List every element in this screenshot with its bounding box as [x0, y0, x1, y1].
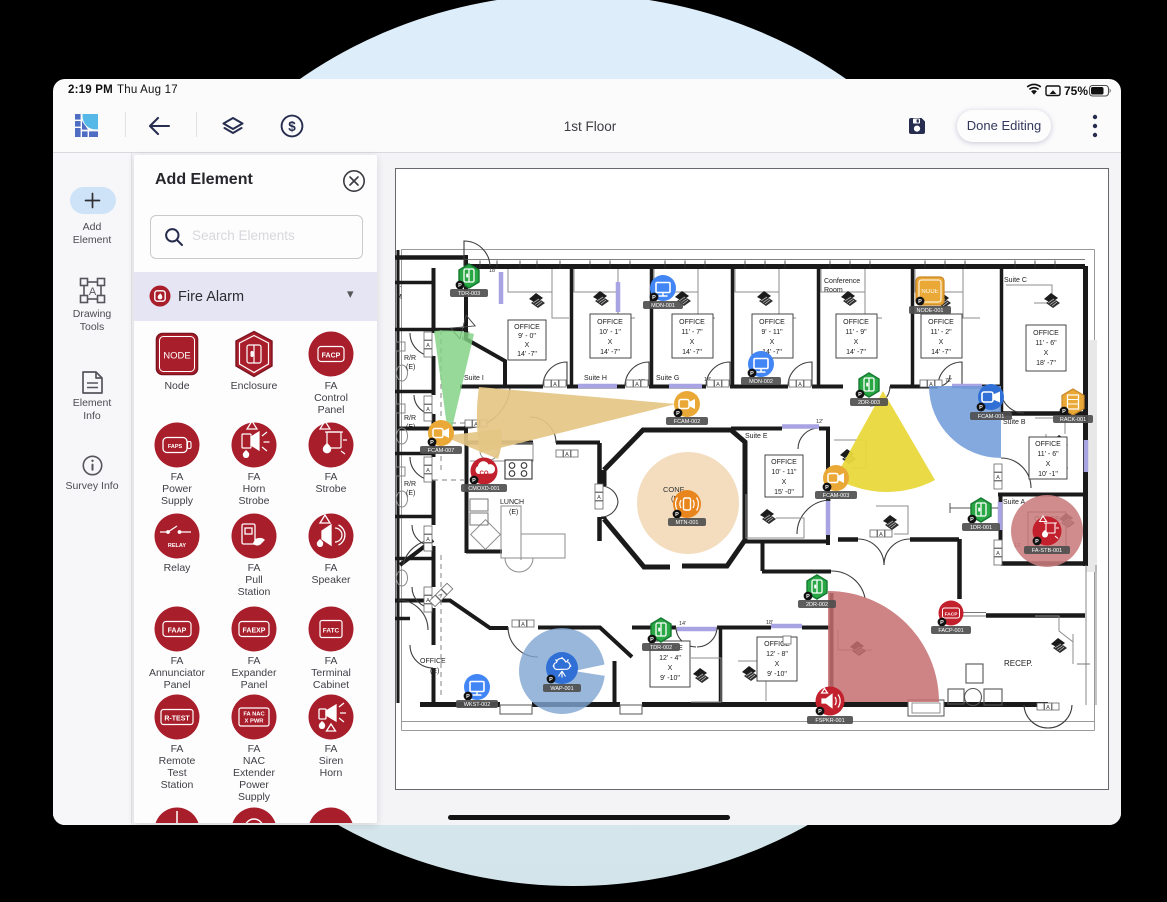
- svg-text:NODE: NODE: [921, 289, 938, 295]
- svg-text:NODE-001: NODE-001: [917, 308, 944, 314]
- svg-text:FANACExtenderPowerSupply: FANACExtenderPowerSupply: [233, 743, 276, 803]
- svg-text:T.: T.: [396, 282, 402, 289]
- svg-text:FA-STB-001: FA-STB-001: [1032, 548, 1062, 554]
- svg-text:FCAM-001: FCAM-001: [978, 414, 1005, 420]
- svg-text:MON-002: MON-002: [749, 379, 773, 385]
- svg-text:14': 14': [679, 621, 686, 627]
- svg-text:LUNCH: LUNCH: [500, 499, 524, 506]
- svg-text:WKST-002: WKST-002: [464, 702, 491, 708]
- svg-text:72': 72': [945, 378, 952, 384]
- svg-text:FCAM-002: FCAM-002: [674, 419, 701, 425]
- svg-text:FAControlPanel: FAControlPanel: [314, 380, 348, 416]
- svg-text:R-TEST: R-TEST: [164, 716, 190, 723]
- svg-text:MTN-001: MTN-001: [676, 520, 699, 526]
- svg-text:X PWR: X PWR: [244, 719, 264, 725]
- svg-text:FCAM-007: FCAM-007: [428, 448, 455, 454]
- svg-text:2DR-003: 2DR-003: [858, 400, 880, 406]
- svg-text:R/R: R/R: [404, 355, 416, 362]
- svg-text:TDR-003: TDR-003: [458, 291, 480, 297]
- svg-text:RECEP.: RECEP.: [1004, 659, 1033, 668]
- svg-text:2DR-002: 2DR-002: [806, 602, 828, 608]
- svg-text:FARemoteTestStation: FARemoteTestStation: [159, 743, 196, 791]
- svg-text:12': 12': [816, 419, 823, 425]
- svg-text:RACK-001: RACK-001: [1060, 417, 1086, 423]
- svg-text:OFFICE: OFFICE: [420, 658, 446, 665]
- svg-text:R/R: R/R: [404, 415, 416, 422]
- svg-text:TDR-002: TDR-002: [650, 645, 672, 651]
- svg-text:Suite I: Suite I: [464, 375, 484, 382]
- svg-text:NODE: NODE: [163, 351, 190, 362]
- svg-text:R/R: R/R: [404, 481, 416, 488]
- svg-text:(E): (E): [406, 490, 415, 497]
- svg-text:Relay: Relay: [164, 562, 192, 574]
- svg-text:(E): (E): [406, 364, 415, 371]
- svg-text:CMOXD-001: CMOXD-001: [468, 486, 499, 492]
- svg-text:FACP-001: FACP-001: [938, 628, 963, 634]
- svg-text:$: $: [288, 119, 296, 134]
- svg-text:FAPS: FAPS: [168, 444, 183, 450]
- svg-text:M: M: [396, 294, 402, 301]
- svg-text:MON-001: MON-001: [651, 303, 675, 309]
- svg-text:Suite B: Suite B: [1003, 419, 1026, 426]
- svg-text:75%: 75%: [1064, 84, 1088, 98]
- svg-text:WAP-001: WAP-001: [550, 686, 573, 692]
- svg-text:FAAnnunciatorPanel: FAAnnunciatorPanel: [149, 655, 206, 691]
- svg-text:FATC: FATC: [323, 628, 340, 635]
- svg-text:(E): (E): [430, 668, 439, 675]
- svg-text:Suite A: Suite A: [1003, 499, 1026, 506]
- svg-text:FASpeaker: FASpeaker: [311, 562, 351, 586]
- svg-text:FAStrobe: FAStrobe: [316, 471, 347, 495]
- svg-text:FASirenHorn: FASirenHorn: [319, 743, 344, 779]
- svg-text:FATerminalCabinet: FATerminalCabinet: [311, 655, 351, 691]
- svg-text:(E): (E): [406, 424, 415, 431]
- svg-text:RELAY: RELAY: [168, 543, 186, 549]
- svg-text:Conference: Conference: [824, 278, 860, 285]
- svg-text:FACP: FACP: [945, 612, 959, 618]
- svg-text:FAExpanderPanel: FAExpanderPanel: [232, 655, 277, 691]
- svg-text:CO: CO: [480, 471, 489, 477]
- svg-text:(E): (E): [509, 509, 518, 516]
- svg-text:FSPKR-001: FSPKR-001: [815, 718, 844, 724]
- svg-text:Suite H: Suite H: [584, 375, 607, 382]
- svg-text:FAAP: FAAP: [168, 628, 187, 635]
- svg-text:Room: Room: [824, 287, 843, 294]
- svg-text:Suite C: Suite C: [1004, 277, 1027, 284]
- svg-text:Node: Node: [164, 380, 189, 392]
- svg-text:Suite E: Suite E: [745, 433, 768, 440]
- svg-text:FAPullStation: FAPullStation: [238, 562, 271, 598]
- svg-text:FA NAC: FA NAC: [243, 712, 265, 718]
- svg-text:FCAM-003: FCAM-003: [823, 493, 850, 499]
- svg-text:Enclosure: Enclosure: [231, 380, 278, 392]
- svg-text:FAPowerSupply: FAPowerSupply: [161, 471, 194, 507]
- svg-text:FACP: FACP: [322, 353, 341, 360]
- svg-text:FAEXP: FAEXP: [243, 628, 266, 635]
- svg-text:18': 18': [489, 268, 496, 274]
- svg-text:Suite G: Suite G: [656, 375, 679, 382]
- svg-text:A: A: [89, 286, 97, 298]
- svg-text:1DR-001: 1DR-001: [970, 525, 992, 531]
- svg-text:FAHornStrobe: FAHornStrobe: [239, 471, 270, 507]
